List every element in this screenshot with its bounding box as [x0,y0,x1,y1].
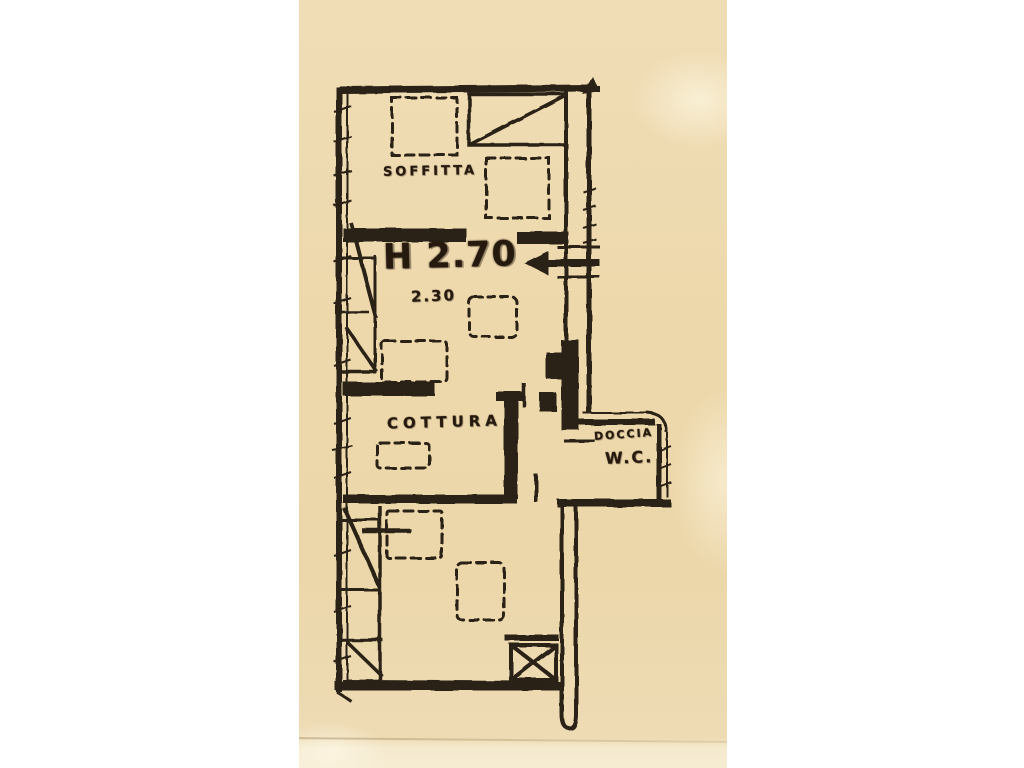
stair-run-lower [337,506,411,688]
fixture-mid-small [469,297,517,337]
label-soffitta: SOFFITTA [383,163,477,180]
label-wc: W.C. [605,447,654,468]
fixture-kitchen [377,443,429,468]
lower-double-wall [562,506,576,728]
floorplan-paper: SOFFITTA H 2.70 2.30 COTTURA DOCCIA W.C. [299,0,727,768]
label-height-main: H 2.70 [382,234,517,277]
floorplan-line-art [299,0,727,768]
kitchen-partition-walls [343,389,536,502]
attic-hatch-box [469,94,566,145]
label-cottura: COTTURA [387,411,502,432]
fixture-mid-left [382,341,447,382]
fixture-lower-left [387,511,442,558]
fixture-soffitta-left [392,98,457,155]
shaft-x-box [505,638,559,680]
fixture-lower-center [457,563,504,620]
right-wall-middle [524,340,579,430]
stair-run-upper [337,223,377,374]
fixture-soffitta-right [486,158,549,218]
label-height-sub: 2.30 [411,286,457,306]
scanned-page: SOFFITTA H 2.70 2.30 COTTURA DOCCIA W.C. [0,0,1024,768]
